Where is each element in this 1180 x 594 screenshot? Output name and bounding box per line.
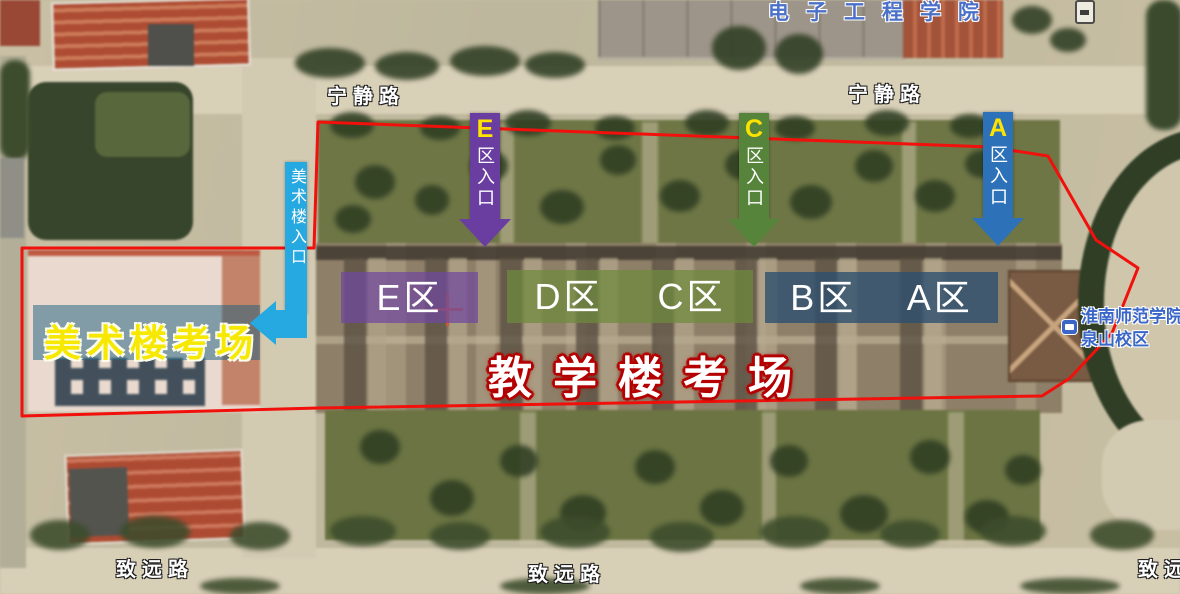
entrance-a-suffix: 区入口 xyxy=(989,145,1007,208)
campus-exam-map: E区 D区 C区 B区 A区 E 区入口 C 区入口 A 区入口 美术楼入口 xyxy=(0,0,1180,594)
tree-icon xyxy=(1020,578,1120,594)
tree-icon xyxy=(760,516,830,548)
tree-icon xyxy=(660,180,700,212)
poi-label-campus: 淮南师范学院 泉山校区 xyxy=(1081,306,1180,352)
road-label-zhiyuan-west: 致远路 xyxy=(116,553,194,582)
tree-icon xyxy=(915,180,955,212)
tree-icon xyxy=(330,112,374,138)
tree-icon xyxy=(865,110,909,136)
entrance-arrow-a: A 区入口 xyxy=(972,112,1024,246)
tree-icon xyxy=(980,516,1046,546)
arrow-down-icon xyxy=(972,218,1024,246)
tree-icon xyxy=(700,490,744,526)
road-label-zhiyuan-east: 致远路 xyxy=(1138,553,1180,582)
campus-name-line2: 泉山校区 xyxy=(1081,329,1180,352)
tree-icon xyxy=(800,578,880,594)
zone-band-e: E区 xyxy=(341,272,478,323)
tree-icon xyxy=(635,450,675,484)
tree-icon xyxy=(775,116,815,140)
tree-icon xyxy=(200,578,280,594)
tree-icon xyxy=(540,190,584,224)
entrance-a-letter: A xyxy=(989,115,1007,143)
entrance-art-label: 美术楼入口 xyxy=(288,168,304,314)
entrance-arrow-c: C 区入口 xyxy=(728,113,780,247)
road-label-zhiyuan-mid: 致远路 xyxy=(528,558,606,587)
entrance-arrow-art-elbow xyxy=(274,310,307,338)
arrow-down-icon xyxy=(728,219,780,247)
lawn-south xyxy=(325,410,1040,540)
tree-icon xyxy=(355,165,395,199)
tree-icon xyxy=(540,516,610,548)
tree-icon xyxy=(650,522,714,552)
entrance-arrow-e: E 区入口 xyxy=(459,113,511,247)
tree-strip-right-edge xyxy=(1146,0,1180,130)
zone-band-ba: B区 A区 xyxy=(765,272,998,323)
tree-icon xyxy=(790,185,832,219)
tree-icon xyxy=(595,116,635,140)
tree-icon xyxy=(880,520,940,548)
lawn-patch-left xyxy=(95,92,190,157)
school-poi-icon xyxy=(1062,320,1077,334)
zone-label-a: A区 xyxy=(907,280,973,316)
road-label-ningjing-east: 宁静路 xyxy=(848,78,926,107)
entrance-e-suffix: 区入口 xyxy=(476,146,494,209)
building-dark-annex xyxy=(148,24,194,66)
tree-icon xyxy=(855,150,893,182)
tree-icon xyxy=(230,522,290,550)
tree-icon xyxy=(335,205,371,233)
zone-band-dc: D区 C区 xyxy=(507,270,753,323)
map-poi-icon-partial xyxy=(1075,0,1095,24)
tree-icon xyxy=(840,495,888,533)
tree-icon xyxy=(430,480,474,516)
building-small-red xyxy=(0,0,40,46)
campus-name-line1: 淮南师范学院 xyxy=(1081,306,1180,329)
zone-label-c: C区 xyxy=(658,279,726,315)
tree-icon xyxy=(505,110,551,136)
tree-icon xyxy=(1005,455,1041,485)
tree-icon xyxy=(770,445,808,477)
tree-strip-left-edge xyxy=(0,60,30,160)
building-small-gray-left xyxy=(0,158,24,238)
tree-icon xyxy=(330,516,396,546)
gate-road xyxy=(1102,420,1180,530)
art-venue-title: 美术楼考场 xyxy=(44,313,259,367)
tree-icon xyxy=(120,516,190,548)
tree-icon xyxy=(600,145,636,175)
arrow-down-icon xyxy=(459,219,511,247)
tree-icon xyxy=(685,110,729,136)
entrance-e-letter: E xyxy=(477,116,494,144)
entrance-c-suffix: 区入口 xyxy=(745,146,763,209)
tree-icon xyxy=(420,116,460,140)
zone-label-e: E区 xyxy=(376,280,442,316)
entrance-arrow-art: 美术楼入口 xyxy=(285,162,307,314)
tree-icon xyxy=(30,520,90,550)
tree-icon xyxy=(415,185,449,215)
tree-icon xyxy=(1090,520,1154,550)
tree-icon xyxy=(430,522,490,550)
entrance-c-letter: C xyxy=(745,116,763,144)
tree-icon xyxy=(360,430,400,464)
zone-label-d: D区 xyxy=(535,279,603,315)
poi-label-electronics-college: 电子工程学院 xyxy=(768,0,996,26)
tree-icon xyxy=(500,445,538,477)
tree-icon xyxy=(910,440,950,474)
zone-label-b: B区 xyxy=(790,280,856,316)
teaching-venue-title: 教学楼考场 xyxy=(488,342,813,406)
road-label-ningjing-west: 宁静路 xyxy=(327,80,405,109)
